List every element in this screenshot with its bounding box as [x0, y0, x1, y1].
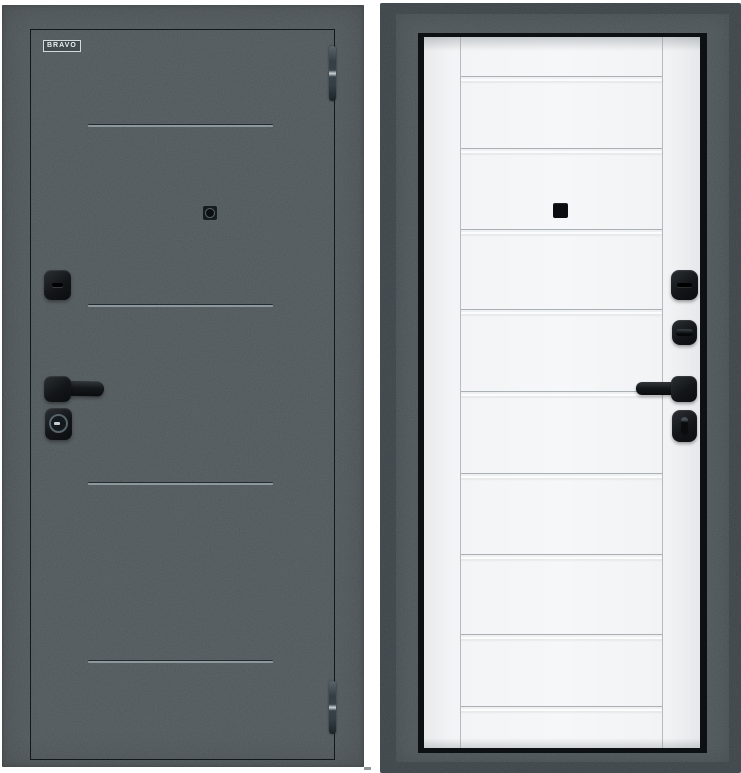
separator-dash — [364, 767, 371, 770]
thumbturn-knob — [681, 417, 688, 435]
keyhole-slot — [54, 422, 60, 425]
handle-rosette — [671, 376, 697, 402]
glass-strip — [461, 634, 662, 640]
keyhole-slot — [52, 283, 63, 287]
keyhole-slot — [677, 283, 692, 287]
peephole-lens — [205, 208, 215, 218]
deadbolt-cover — [671, 270, 698, 300]
leaf-top-shadow — [424, 37, 700, 51]
brand-logo: BRAVO — [43, 40, 81, 52]
glass-strip — [461, 309, 662, 315]
left-door-photo[interactable]: BRAVO — [2, 5, 364, 767]
hinge-top — [329, 46, 336, 101]
glass-strip — [461, 229, 662, 235]
glass-strip — [461, 706, 662, 712]
glass-strip — [461, 148, 662, 154]
product-image-canvas: BRAVO — [0, 0, 741, 773]
handle-rosette — [44, 376, 71, 402]
decor-groove — [88, 304, 273, 307]
glass-strip — [461, 76, 662, 82]
peephole-icon — [203, 206, 217, 220]
glass-strip — [461, 391, 662, 397]
glass-strip — [461, 473, 662, 479]
leaf-bottom-shadow — [424, 738, 700, 748]
thumbturn-lower — [672, 410, 697, 442]
hinge-bottom — [329, 681, 336, 734]
peephole-icon — [553, 203, 568, 218]
decor-groove — [88, 660, 273, 663]
decor-groove — [88, 124, 273, 127]
cylinder-escutcheon — [45, 408, 72, 440]
deadbolt-cover — [44, 270, 71, 300]
thumbturn-upper — [672, 320, 697, 345]
glass-strip — [461, 554, 662, 560]
decor-groove — [88, 482, 273, 485]
thumbturn-knob — [676, 329, 693, 336]
